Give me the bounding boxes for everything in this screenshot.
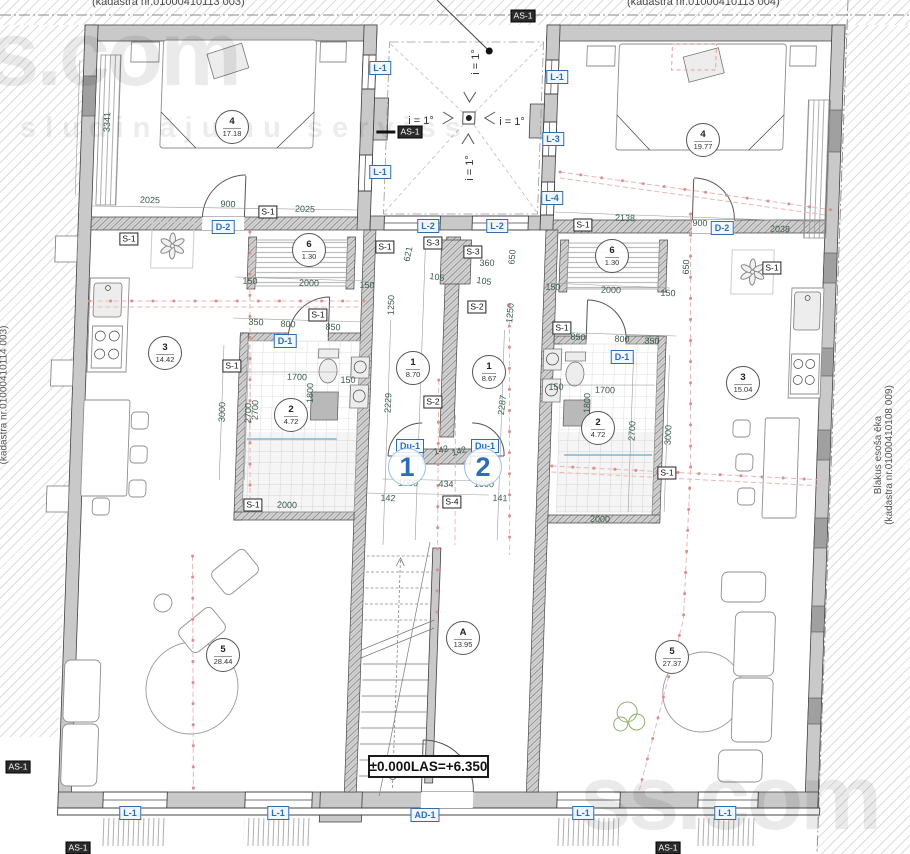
dimension-label: 2000 <box>590 514 610 525</box>
dimension-label: 142 <box>380 493 395 504</box>
dimension-label: 2000 <box>299 278 319 289</box>
opening-label-d-2: D-2 <box>212 220 235 234</box>
opening-label-l-2: L-2 <box>417 219 439 233</box>
room-marker: 18.67 <box>472 355 506 389</box>
cadastre-note-left: (kadastra nr.01000410113 003) <box>92 0 245 8</box>
adjacent-building-note-right: Blakus esoša ēka (kadastra nr.0100041010… <box>873 385 895 525</box>
dimension-label: 150 <box>359 280 374 291</box>
opening-label-l-1: L-1 <box>572 806 594 820</box>
dimension-label: 1800 <box>305 383 316 403</box>
dimension-label: 900 <box>220 199 235 210</box>
opening-label-l-2: L-2 <box>486 219 508 233</box>
dimension-label: 650 <box>506 249 517 265</box>
opening-label-l-1: L-1 <box>714 806 736 820</box>
dimension-label: 621 <box>402 246 415 263</box>
dimension-label: 2000 <box>277 500 297 511</box>
opening-label-l-1: L-1 <box>267 806 289 820</box>
dimension-label: 1800 <box>582 393 593 413</box>
dimension-label: 142 <box>450 444 467 458</box>
dimension-label: 2287 <box>496 394 508 415</box>
detail-label-s-1: S-1 <box>552 322 571 335</box>
dimension-label: 2025 <box>295 204 315 215</box>
dimension-label: 150 <box>660 288 675 299</box>
dimension-label: 360 <box>479 258 494 268</box>
room-marker: 24.72 <box>274 398 308 432</box>
opening-label-d-1: D-1 <box>611 350 634 364</box>
dimension-label: 3000 <box>217 402 228 422</box>
text-overlay: 3341202590020252138900203815020001501502… <box>0 0 910 854</box>
dimension-label: 434 <box>438 479 453 490</box>
dimension-label: 105 <box>476 275 492 287</box>
dimension-label: 1250 <box>386 295 397 315</box>
room-marker: A13.95 <box>446 621 480 655</box>
opening-label-l-3: L-3 <box>542 132 564 146</box>
adjacent-note-line2: (kadastra nr.01000410108 009) <box>884 385 895 525</box>
detail-label-as-1: AS-1 <box>656 842 681 854</box>
opening-label-l-1: L-1 <box>369 61 391 75</box>
opening-label-l-4: L-4 <box>541 191 563 205</box>
room-marker: 315.04 <box>726 366 760 400</box>
dimension-label: 1700 <box>595 385 615 396</box>
detail-label-s-1: S-1 <box>119 233 138 246</box>
dimension-label: 1700 <box>287 372 307 383</box>
dimension-label: 800 <box>280 319 296 330</box>
opening-label-d-2: D-2 <box>711 221 734 235</box>
detail-label-as-1: AS-1 <box>398 126 423 139</box>
dimension-label: 142 <box>432 443 449 457</box>
dimension-label: 105 <box>429 271 445 283</box>
dimension-label: 2229 <box>382 393 393 414</box>
slope-label: i = 1° <box>470 49 482 75</box>
dimension-label: 150 <box>340 375 355 385</box>
detail-label-s-1: S-1 <box>573 219 592 232</box>
dimension-label: 650 <box>681 259 692 274</box>
elevation-note: ±0.000LAS=+6.350 <box>368 755 489 778</box>
dimension-label: 141 <box>492 493 507 504</box>
adjacent-note-line3: (kadastra nr.01000410114 003) <box>0 326 10 465</box>
dimension-label: 2025 <box>140 195 160 206</box>
dimension-label: 850 <box>325 322 341 333</box>
room-marker: 314.42 <box>148 336 182 370</box>
room-marker: 24.72 <box>581 411 615 445</box>
detail-label-s-1: S-1 <box>258 206 277 219</box>
dimension-label: 2700 <box>626 421 637 442</box>
room-marker: 528.44 <box>206 638 240 672</box>
dimension-label: 150 <box>548 382 563 392</box>
detail-label-s-3: S-3 <box>463 246 482 259</box>
dimension-label: 150 <box>545 282 560 293</box>
dimension-label: 3000 <box>662 425 673 446</box>
room-marker: 419.77 <box>686 123 720 157</box>
detail-label-as-1: AS-1 <box>511 10 536 23</box>
detail-label-s-4: S-4 <box>442 496 461 509</box>
room-marker: 61.30 <box>292 233 326 267</box>
room-marker: 18.70 <box>396 351 430 385</box>
slope-label: i = 1° <box>499 116 525 128</box>
dimension-label: 2000 <box>601 285 621 296</box>
dimension-label: 2138 <box>615 213 635 224</box>
detail-label-s-1: S-1 <box>375 241 394 254</box>
room-marker: 527.37 <box>655 640 689 674</box>
room-marker: 61.30 <box>595 239 629 273</box>
apartment-number: 1 <box>388 448 426 486</box>
detail-label-s-2: S-2 <box>467 301 486 314</box>
opening-label-l-1: L-1 <box>119 806 141 820</box>
detail-label-s-1: S-1 <box>762 262 781 275</box>
detail-label-as-1: AS-1 <box>6 761 31 774</box>
detail-label-s-1: S-1 <box>243 499 262 512</box>
opening-label-l-1: L-1 <box>546 70 568 84</box>
dimension-label: 900 <box>692 218 707 229</box>
dimension-label: 2038 <box>770 224 790 235</box>
opening-label-ad-1: AD-1 <box>410 808 439 822</box>
adjacent-building-note-left: (kadastra nr.01000410114 003) <box>0 326 10 465</box>
dimension-label: 150 <box>242 276 257 287</box>
apartment-number: 2 <box>464 448 502 486</box>
dimension-label: 800 <box>614 334 630 345</box>
dimension-label: 350 <box>644 336 660 347</box>
detail-label-s-1: S-1 <box>657 467 676 480</box>
dimension-label: 1250 <box>504 303 516 324</box>
opening-label-d-1: D-1 <box>274 334 297 348</box>
detail-label-s-1: S-1 <box>222 360 241 373</box>
cadastre-note-right: (kadastra nr.01000410113 004) <box>627 0 780 8</box>
detail-label-s-2: S-2 <box>423 396 442 409</box>
adjacent-note-line1: Blakus esoša ēka <box>873 416 884 494</box>
dimension-label: 3341 <box>102 112 113 132</box>
slope-label: i = 1° <box>464 155 476 181</box>
floor-plan-canvas: ss.com sludinājumu serviss ss.com sludin… <box>0 0 910 854</box>
dimension-label: 350 <box>248 317 264 328</box>
opening-label-l-1: L-1 <box>369 165 391 179</box>
dimension-label: 850 <box>570 332 586 343</box>
room-marker: 417.18 <box>215 110 249 144</box>
detail-label-s-3: S-3 <box>423 237 442 250</box>
dimension-label: 2700 <box>243 403 254 423</box>
detail-label-as-1: AS-1 <box>66 842 91 854</box>
detail-label-s-1: S-1 <box>308 309 327 322</box>
